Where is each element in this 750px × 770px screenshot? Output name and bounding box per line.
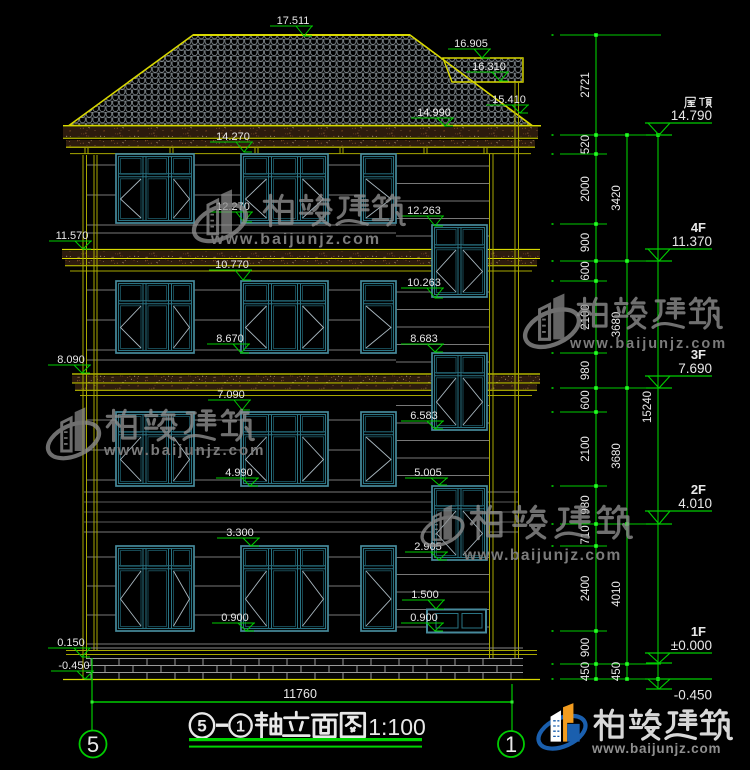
svg-text:3.300: 3.300 xyxy=(226,527,254,539)
svg-text:2400: 2400 xyxy=(580,576,592,602)
svg-text:7.690: 7.690 xyxy=(678,361,712,376)
svg-text:17.511: 17.511 xyxy=(277,15,310,27)
svg-text:www.baijunjz.com: www.baijunjz.com xyxy=(463,547,622,564)
svg-text:0.900: 0.900 xyxy=(221,612,249,624)
svg-text:www.baijunjz.com: www.baijunjz.com xyxy=(591,741,721,756)
svg-text:4F: 4F xyxy=(691,220,706,235)
svg-text:6.583: 6.583 xyxy=(410,410,438,422)
svg-text:1.500: 1.500 xyxy=(411,589,439,601)
svg-text:11.370: 11.370 xyxy=(672,234,712,249)
svg-text:520: 520 xyxy=(580,135,592,154)
svg-text:900: 900 xyxy=(580,233,592,252)
svg-text:2F: 2F xyxy=(691,482,706,497)
svg-text:4.990: 4.990 xyxy=(225,467,253,479)
svg-text:10.770: 10.770 xyxy=(215,259,249,271)
svg-text:12.263: 12.263 xyxy=(407,205,441,217)
svg-text:450: 450 xyxy=(611,662,623,681)
svg-text:14.990: 14.990 xyxy=(417,107,451,119)
svg-text:8.683: 8.683 xyxy=(410,333,438,345)
svg-text:-0.450: -0.450 xyxy=(674,688,712,703)
svg-text:www.baijunjz.com: www.baijunjz.com xyxy=(210,231,381,248)
svg-text:8.670: 8.670 xyxy=(216,333,244,345)
svg-text:0.150: 0.150 xyxy=(57,637,85,649)
svg-text:11.570: 11.570 xyxy=(56,230,89,242)
svg-text:-0.450: -0.450 xyxy=(58,660,89,672)
svg-text:2100: 2100 xyxy=(580,436,592,462)
svg-text:3420: 3420 xyxy=(611,185,623,211)
svg-text:5: 5 xyxy=(197,717,206,736)
svg-text:www.baijunjz.com: www.baijunjz.com xyxy=(569,336,727,352)
svg-text:4.010: 4.010 xyxy=(678,496,712,511)
svg-text:15.410: 15.410 xyxy=(492,94,526,106)
svg-text:16.905: 16.905 xyxy=(454,38,488,50)
svg-text:4010: 4010 xyxy=(611,581,623,607)
svg-text:600: 600 xyxy=(580,261,592,280)
svg-text:600: 600 xyxy=(580,390,592,409)
svg-text:2721: 2721 xyxy=(580,72,592,98)
svg-text:±0.000: ±0.000 xyxy=(671,638,712,653)
svg-text:15240: 15240 xyxy=(642,391,654,423)
svg-text:980: 980 xyxy=(580,361,592,380)
svg-text:0.900: 0.900 xyxy=(410,612,438,624)
svg-text:1:100: 1:100 xyxy=(368,714,426,740)
svg-text:1: 1 xyxy=(505,732,517,757)
svg-text:5.005: 5.005 xyxy=(414,467,442,479)
svg-text:14.270: 14.270 xyxy=(216,131,250,143)
svg-text:1: 1 xyxy=(236,719,245,736)
svg-text:11760: 11760 xyxy=(283,687,317,701)
svg-text:8.090: 8.090 xyxy=(57,354,85,366)
svg-text:14.790: 14.790 xyxy=(671,108,712,123)
svg-text:10.263: 10.263 xyxy=(407,277,441,289)
svg-text:1F: 1F xyxy=(691,624,706,639)
svg-text:3680: 3680 xyxy=(611,443,623,469)
svg-text:900: 900 xyxy=(580,638,592,657)
svg-text:5: 5 xyxy=(87,732,99,757)
svg-text:16.310: 16.310 xyxy=(472,61,506,73)
svg-text:www.baijunjz.com: www.baijunjz.com xyxy=(103,442,265,459)
svg-text:7.090: 7.090 xyxy=(217,389,245,401)
svg-text:450: 450 xyxy=(580,662,592,681)
svg-text:2000: 2000 xyxy=(580,176,592,202)
